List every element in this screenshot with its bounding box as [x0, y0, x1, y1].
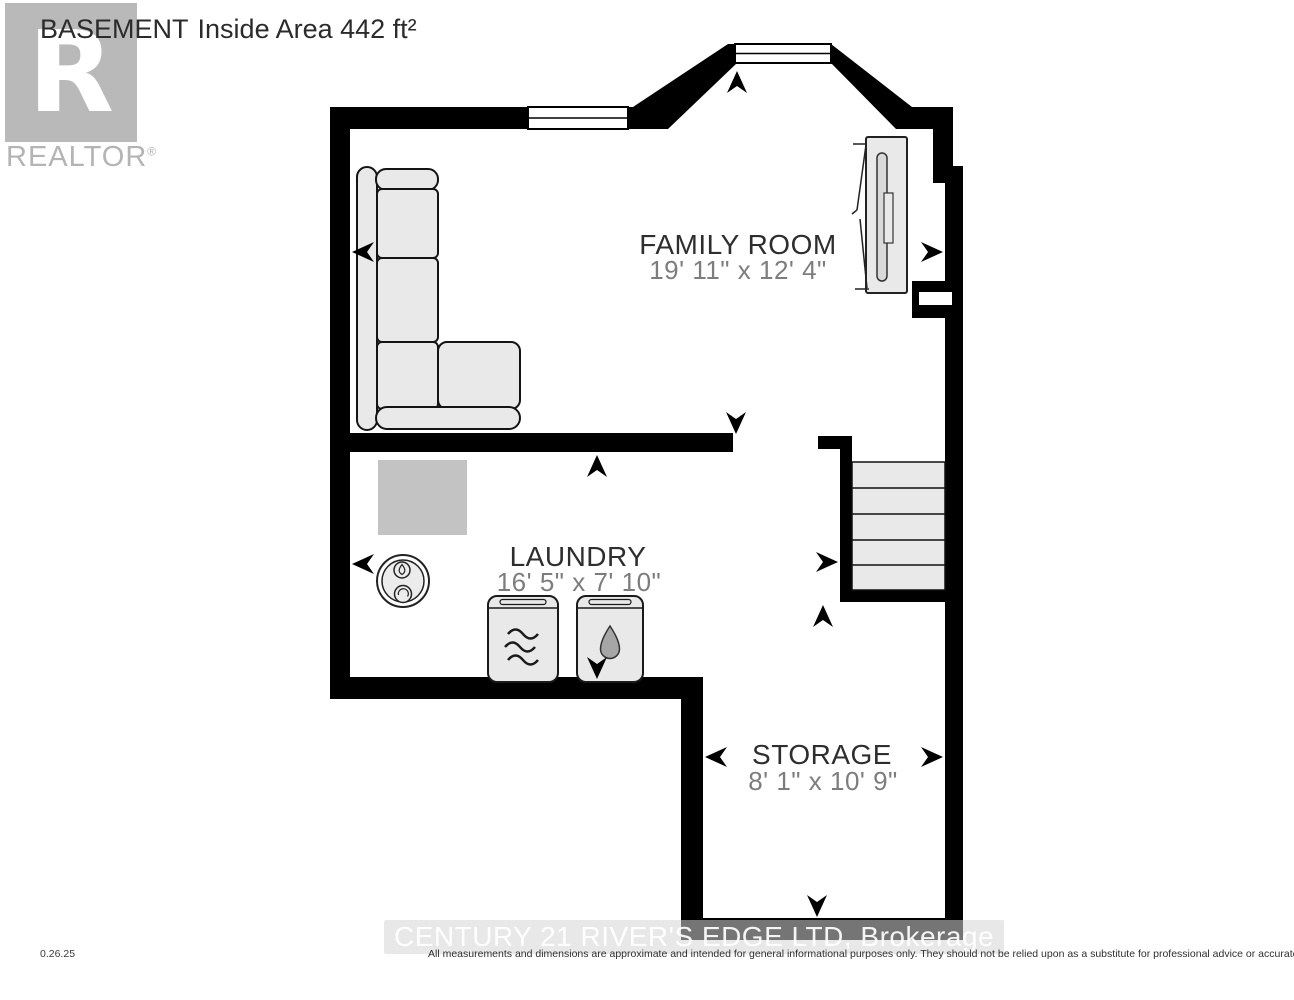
- wall-left: [330, 107, 350, 699]
- footer-date: 0.26.25: [40, 948, 75, 960]
- footer-disclaimer: All measurements and dimensions are appr…: [428, 948, 1294, 960]
- wall-stairs-hook: [818, 436, 852, 449]
- wall-right-upper: [933, 129, 953, 170]
- wall-divider-familyroom-laundry: [330, 433, 733, 452]
- furnace-icon: [378, 460, 467, 535]
- arrow-laundry-right-icon: [816, 552, 838, 572]
- arrow-laundry-left-icon: [352, 554, 374, 574]
- arrow-laundry-up-icon: [587, 455, 607, 477]
- arrow-familyroom-right-icon: [921, 242, 943, 262]
- floor-name: BASEMENT: [40, 14, 189, 44]
- arrow-storage-down-icon: [807, 895, 827, 917]
- washer-icon: [488, 596, 558, 682]
- wall-right-lower: [945, 166, 963, 940]
- stairs-icon: [852, 462, 945, 590]
- inside-area: Inside Area 442 ft²: [198, 14, 417, 44]
- arrow-storage-left-icon: [705, 747, 727, 767]
- room-dims-family-room: 19' 11" x 12' 4": [649, 255, 827, 286]
- window-icon: [528, 107, 628, 129]
- wall-stairs-bottom: [840, 590, 963, 602]
- arrow-storage-right-icon: [921, 747, 943, 767]
- bay-window-icon: [735, 44, 831, 63]
- wall-storage-left: [681, 699, 703, 922]
- arrow-storage-up-icon: [813, 605, 833, 627]
- wall-bay-right-diagonal: [831, 44, 953, 129]
- wall-stairs-left: [840, 449, 852, 592]
- fireplace-tv-icon: [852, 137, 907, 293]
- room-dims-storage: 8' 1" x 10' 9": [748, 766, 898, 797]
- arrow-familyroom-down-icon: [726, 412, 746, 434]
- room-dims-laundry: 16' 5" x 7' 10": [497, 567, 662, 598]
- floorplan-canvas: R REALTOR® BASEMENTInside Area 442 ft²: [0, 0, 1294, 1000]
- floorplan-drawing: [0, 0, 1294, 1000]
- plan-title: BASEMENTInside Area 442 ft²: [40, 14, 417, 45]
- wall-bay-left-diagonal: [633, 44, 737, 129]
- water-heater-icon: [377, 555, 429, 607]
- arrow-bay-up-icon: [727, 71, 747, 93]
- sectional-sofa-icon: [357, 167, 520, 430]
- wall-niche: [919, 292, 952, 305]
- dryer-icon: [577, 596, 643, 682]
